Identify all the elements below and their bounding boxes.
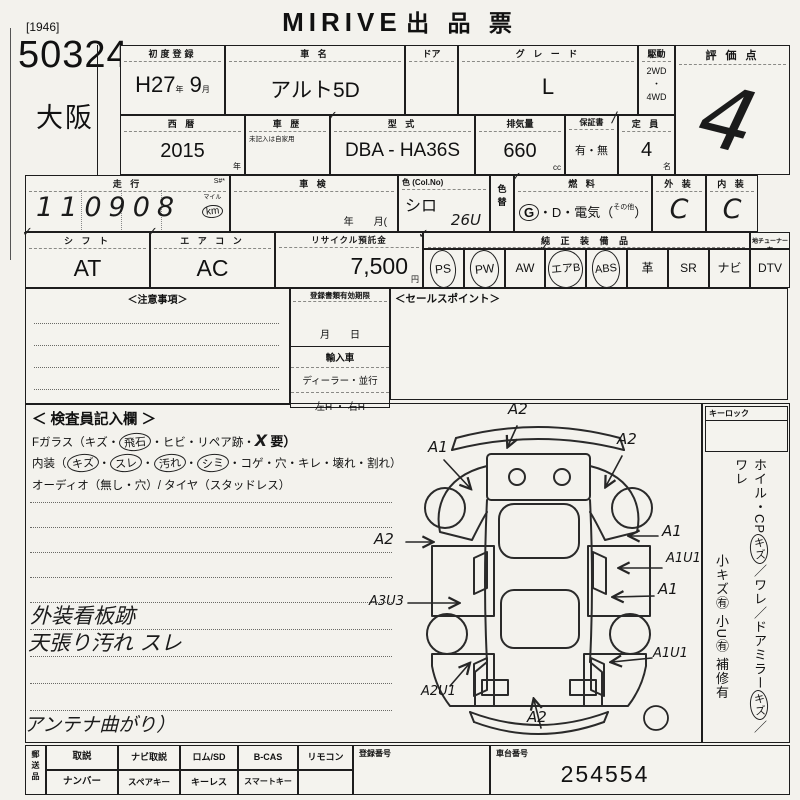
exterior-label: 外 装 [656,177,702,192]
tuner-note-cell: 地チューナー有 [750,232,790,249]
inspector-circle-mark [644,706,668,730]
fuel-close: ） [634,205,647,220]
grade-value: L [459,74,637,100]
registration-number-box: 登録番号 [353,745,490,795]
fuel-gasoline-circled: G [518,203,540,222]
cell-navi-manual: ナビ取説 [118,745,180,770]
cell-remote: リモコン [298,745,353,770]
capacity-slash-mark: / [612,110,617,126]
field-capacity: 定 員 4 名 [618,115,675,175]
memo-line [30,502,392,503]
interior-circled-yogore: 汚れ [153,453,186,474]
equip-sr-label: SR [669,250,708,286]
smart-key-label: スマートキー [239,771,297,793]
notes-line [34,323,279,324]
docs-import-label: 輸入車 [291,346,389,367]
keyless-label: キーレス [181,771,237,793]
check-mark: ✓ [418,227,429,242]
equip-pw-label: PW [468,249,501,289]
history-note: 未記入は自家用 [246,132,329,144]
field-model-code: 型 式 DBA - HA36S [330,115,475,175]
recycle-fee-value: 7,500 [276,248,422,280]
field-inspection: 車 検 年 月( [230,175,398,232]
interior-circled-shimi: シミ [196,453,229,474]
car-outline [425,427,652,734]
audio-tire-line: オーディオ（無し・穴）/ タイヤ（スタッドレス） [32,477,290,493]
field-drive: 駆動 2WD ・ 4WD [638,45,675,115]
damage-annotation: A1U1 [666,551,701,566]
equip-navi: ナビ [709,249,750,288]
field-grade: グ レ ー ド L [458,45,638,115]
equip-ps: PS [423,249,464,288]
sheet-title: MIRIVE 出 品 票 [230,4,570,38]
damage-annotation: A2 [374,530,394,548]
note-headliner: 天張り汚れ スレ [28,627,182,657]
note-exterior-signboard: 外装看板跡 [30,600,135,630]
first-reg-month: 9 [190,72,202,97]
capacity-value: 4 [619,139,674,162]
field-history: 車 歴 未記入は自家用 [245,115,330,175]
check-mark: ✓ [539,240,550,255]
recycle-fee-unit: 円 [411,274,419,285]
first-reg-era-unit: 年 [175,85,183,94]
annotation-arrows [406,426,662,728]
displacement-label: 排気量 [479,117,561,132]
damage-annotation: A3U3 [369,594,404,609]
damage-annotation: A2U1 [421,684,456,699]
interior-condition-line: 内装（キズ・スレ・汚れ・シミ・コゲ・穴・キレ・壊れ・割れ） [32,454,402,472]
wheel-text: ホイル・CP [752,458,767,534]
sales-point-box: ＜セールスポイント＞ [390,288,788,400]
cell-manual: 取説 [46,745,118,770]
interior-pre: 内装（ [32,458,67,470]
capacity-unit: 名 [663,161,671,172]
rom-sd-label: ロム/SD [181,746,237,768]
mirror-kizu-circled: キズ [749,689,770,720]
color-label: 色 (Col.No) [402,177,486,190]
small-damage-line: 小キズ㊒ 小U㊒ 補修有 [712,458,731,738]
history-label: 車 歴 [249,117,326,132]
lot-tag: [1946] [26,20,59,34]
year-unit: 年 [233,161,241,172]
car-name-value: アルト5D [226,74,404,104]
field-displacement: 排気量 660 cc [475,115,565,175]
first-reg-month-unit: 月 [202,85,210,94]
damage-annotation: A1U1 [653,646,688,661]
color-change-label: 色替 [496,184,509,210]
field-recycle-fee: リサイクル預託金 7,500 円 [275,232,423,288]
equipment-label: 純 正 装 備 品 [428,234,745,248]
field-interior-grade: 内 装 C [706,175,758,232]
memo-line [30,527,392,528]
damage-annotation: A1 [428,438,448,456]
recycle-fee-label: リサイクル預託金 [279,234,419,248]
remote-label: リモコン [299,746,352,768]
docs-dealer-label: ディーラー・並行 [291,367,389,392]
docs-date: 月 日 [291,326,389,341]
equip-pw: PW [464,249,505,288]
docs-column: 登録書類有効期限 月 日 輸入車 ディーラー・並行 左H ・ 右H [290,288,390,408]
notes-label: ＜注意事項＞ [26,289,289,306]
notes-line [34,367,279,368]
notes-line [34,389,279,390]
check-mark: ✓ [147,225,158,240]
memo-line [30,552,392,553]
cell-blank [298,770,353,795]
cell-smart-key: スマートキー [238,770,298,795]
field-shift: シ フ ト AT [25,232,150,288]
capacity-label: 定 員 [622,117,671,132]
field-door: ドア [405,45,458,115]
equip-dtv: DTV [750,249,790,288]
field-color: 色 (Col.No) シロ 26U [398,175,490,232]
sales-point-label: ＜セールスポイント＞ [391,289,787,306]
mirror-text: ／ワレ／ドアミラー [752,564,767,690]
lot-number: 50324 [18,34,129,77]
equip-navi-label: ナビ [710,250,749,286]
field-year: 西 暦 2015 年 [120,115,245,175]
interior-circled-sure: スレ [109,453,142,474]
navi-manual-label: ナビ取説 [119,746,179,768]
manual-label: 取説 [47,746,117,768]
equip-leather: 革 [627,249,668,288]
model-code-value: DBA - HA36S [331,140,474,162]
fglass-mid: ・ヒビ・リペア跡・ [151,437,255,449]
notes-box: ＜注意事項＞ [25,288,290,405]
equipment-header: 純 正 装 備 品 [423,232,750,249]
inspection-label: 車 検 [234,177,394,192]
check-mark: ✓ [22,225,33,240]
sidebar-notes: ホイル・CPキズ／ワレ／ドアミラーキズ／ワレ 小キズ㊒ 小U㊒ 補修有 [712,458,769,738]
year-label: 西 暦 [124,117,241,132]
notes-line [34,345,279,346]
inspection-sub: 年 月( [231,213,387,228]
memo-line [30,577,392,578]
interior-label: 内 装 [710,177,754,192]
fuel-other: その他 [613,204,634,211]
fglass-post: 要） [270,434,296,449]
equip-aw-label: AW [506,250,544,286]
wheel-mirror-line: ホイル・CPキズ／ワレ／ドアミラーキズ／ワレ [731,458,769,738]
field-warranty: 保証書 有・無 [565,115,618,175]
wheel-kizu-circled: キズ [749,533,770,564]
shift-value: AT [26,255,149,282]
displacement-value: 660 [476,140,564,163]
grade-label: グ レ ー ド [462,47,634,62]
score-label: 評 価 点 [679,47,786,65]
year-value: 2015 [121,140,244,163]
bcas-label: B-CAS [239,746,297,768]
drive-label: 駆動 [642,47,671,62]
left-form-line [97,45,98,175]
field-mileage: 走 行 S#* 110908 マイル km [25,175,230,232]
field-car-name: 車 名 アルト5D [225,45,405,115]
damage-annotation: A2 [617,430,637,448]
sep: ・ [142,458,154,470]
drive-dot: ・ [652,79,661,89]
check-mark: ✓ [327,109,338,124]
damage-annotation: A1 [658,580,678,598]
note-antenna: アンテナ曲がり） [24,710,175,737]
shift-label: シ フ ト [29,234,146,249]
displacement-unit: cc [553,163,561,172]
sep: ・ [99,458,111,470]
cell-bcas: B-CAS [238,745,298,770]
chassis-number-value: 254554 [491,761,789,788]
model-code-label: 型 式 [334,117,471,132]
sep: ・ [186,458,198,470]
keylock-label: キーロック [706,407,787,421]
title-latin: MIRIVE [282,7,402,37]
cell-number-plate: ナンバー [46,770,118,795]
equip-airbag: エアB [545,249,586,288]
equip-abs: ABS [586,249,627,288]
mileage-unit-km: km [201,204,223,219]
equip-leather-label: 革 [628,250,667,286]
equip-ps-label: PS [429,249,458,289]
fuel-options: ・D・電気（ [539,205,613,220]
check-mark: ✓ [511,170,522,185]
chassis-number-box: 車台番号 254554 [490,745,790,795]
first-reg-era: H27 [135,72,175,97]
field-fuel: 燃 料 G・D・電気（その他） [514,175,652,232]
aircon-label: エ ア コ ン [154,234,271,249]
interior-circled-kizu: キズ [66,453,99,474]
fglass-pre: Fガラス（キズ・ [32,437,119,449]
warranty-label: 保証書 [569,117,614,130]
field-first-registration: 初度登録 H27年 9月 [120,45,225,115]
auction-sheet: MIRIVE 出 品 票 [1946] 50324 大阪 初度登録 H27年 9… [0,0,800,800]
field-exterior-grade: 外 装 C [652,175,706,232]
cell-keyless: キーレス [180,770,238,795]
drive-4wd: 4WD [647,92,667,102]
mileage-label: 走 行 [29,177,226,192]
field-aircon: エ ア コ ン AC [150,232,275,288]
spare-key-label: スペアキー [119,771,179,793]
aircon-value: AC [151,255,274,282]
interior-grade-handwritten: C [707,194,757,225]
keylock-box: キーロック [705,406,788,452]
equip-sr: SR [668,249,709,288]
car-name-label: 車 名 [229,47,401,62]
fuel-label: 燃 料 [518,177,648,192]
title-jp: 出 品 票 [406,10,518,36]
shipping-items-label: 郵送品 [30,750,41,783]
warranty-value: 有・無 [566,142,617,158]
damage-annotation: A2 [508,400,528,418]
first-registration-label: 初度登録 [124,47,221,62]
damage-annotation: A2 [527,708,547,726]
mileage-value: 110908 [36,192,181,223]
chassis-number-label: 車台番号 [491,746,789,759]
fglass-circled-tobiishi: 飛石 [119,432,152,453]
drive-2wd: 2WD [647,66,667,76]
equip-abs-label: ABS [591,249,622,289]
mileage-unit-mile: マイル [202,192,223,201]
equip-dtv-label: DTV [751,250,789,286]
damage-annotation: A1 [662,522,682,540]
exterior-grade-handwritten: C [653,194,705,225]
door-label: ドア [409,47,454,62]
left-edge-mark [10,28,11,260]
registration-number-label: 登録番号 [354,746,489,759]
equip-airbag-label: エアB [546,249,585,290]
number-plate-label: ナンバー [47,771,117,793]
color-code-handwritten: 26U [451,211,481,229]
cell-spare-key: スペアキー [118,770,180,795]
docs-deadline-label: 登録書類有効期限 [293,290,387,302]
cell-rom-sd: ロム/SD [180,745,238,770]
mileage-stamp-marks: S#* [214,178,225,185]
shipping-items-cell: 郵送品 [25,745,46,795]
inspector-title: ＜ 検査員記入欄 ＞ [32,408,156,429]
fglass-line: Fガラス（キズ・飛石・ヒビ・リペア跡・X 要） [32,431,296,451]
memo-line [30,683,392,684]
auction-site: 大阪 [36,96,94,135]
fglass-x-mark: X [255,431,267,450]
